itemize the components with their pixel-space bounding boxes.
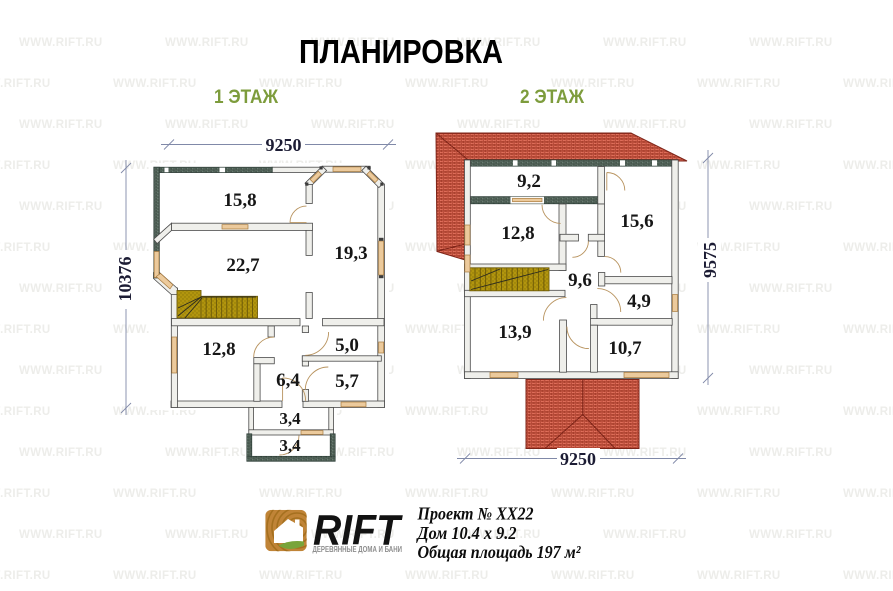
svg-text:10,7: 10,7	[608, 338, 642, 359]
svg-text:Общая площадь 197 м²: Общая площадь 197 м²	[418, 542, 582, 562]
svg-text:Дом 10.4 х 9.2: Дом 10.4 х 9.2	[416, 523, 517, 543]
svg-text:12,8: 12,8	[202, 339, 235, 360]
svg-text:WWW.RIFT.RU: WWW.RIFT.RU	[405, 78, 489, 90]
svg-text:WWW.RIFT.RU: WWW.RIFT.RU	[843, 406, 893, 418]
svg-text:WWW.RIFT.RU: WWW.RIFT.RU	[19, 447, 103, 459]
svg-text:WWW.RIFT.RU: WWW.RIFT.RU	[19, 119, 103, 131]
svg-text:WWW.RIFT.RU: WWW.RIFT.RU	[843, 570, 893, 582]
svg-text:WWW.RIFT.RU: WWW.RIFT.RU	[405, 570, 489, 582]
svg-text:WWW.RIFT.RU: WWW.RIFT.RU	[843, 242, 893, 254]
svg-text:15,6: 15,6	[620, 211, 653, 232]
svg-text:WWW.RIFT.RU: WWW.RIFT.RU	[749, 37, 833, 49]
svg-text:WWW.RIFT.RU: WWW.RIFT.RU	[0, 488, 51, 500]
svg-text:WWW.RIFT.RU: WWW.RIFT.RU	[749, 529, 833, 541]
svg-text:WWW.RIFT.RU: WWW.RIFT.RU	[603, 119, 687, 131]
svg-text:WWW.RIFT.RU: WWW.RIFT.RU	[165, 37, 249, 49]
svg-text:WWW.RIFT.RU: WWW.RIFT.RU	[405, 406, 489, 418]
svg-text:WWW.RIFT.RU: WWW.RIFT.RU	[843, 160, 893, 172]
svg-text:WWW.RIFT.RU: WWW.RIFT.RU	[19, 283, 103, 295]
svg-text:WWW.RIFT.RU: WWW.RIFT.RU	[551, 488, 635, 500]
svg-text:19,3: 19,3	[334, 243, 367, 264]
svg-text:WWW.RIFT.RU: WWW.RIFT.RU	[19, 529, 103, 541]
svg-text:WWW.RIFT.RU: WWW.RIFT.RU	[697, 78, 781, 90]
svg-text:1 ЭТАЖ: 1 ЭТАЖ	[214, 87, 279, 108]
svg-text:2 ЭТАЖ: 2 ЭТАЖ	[520, 87, 585, 108]
svg-text:WWW.RIFT.RU: WWW.RIFT.RU	[0, 242, 51, 254]
svg-text:WWW.RIFT.RU: WWW.RIFT.RU	[19, 365, 103, 377]
svg-text:13,9: 13,9	[498, 322, 531, 343]
svg-text:WWW.RIFT.RU: WWW.RIFT.RU	[749, 119, 833, 131]
svg-text:WWW.RIFT.RU: WWW.RIFT.RU	[843, 488, 893, 500]
svg-text:WWW.RIFT.RU: WWW.RIFT.RU	[19, 201, 103, 213]
svg-text:WWW.RIFT.RU: WWW.RIFT.RU	[311, 119, 395, 131]
svg-text:WWW.RIFT.RU: WWW.RIFT.RU	[113, 570, 197, 582]
svg-text:ПЛАНИРОВКА: ПЛАНИРОВКА	[299, 33, 503, 70]
svg-text:5,0: 5,0	[335, 335, 359, 356]
svg-text:9,6: 9,6	[568, 270, 592, 291]
svg-text:9250: 9250	[560, 449, 596, 469]
svg-text:12,8: 12,8	[501, 223, 534, 244]
svg-text:WWW.RIFT.RU: WWW.RIFT.RU	[749, 447, 833, 459]
svg-text:WWW.RIFT.RU: WWW.RIFT.RU	[19, 37, 103, 49]
svg-text:WWW.RIFT.RU: WWW.RIFT.RU	[843, 324, 893, 336]
svg-text:WWW.RIFT.RU: WWW.RIFT.RU	[603, 37, 687, 49]
svg-text:9575: 9575	[700, 242, 720, 278]
svg-text:WWW.RIFT.RU: WWW.RIFT.RU	[259, 570, 343, 582]
svg-text:WWW.RIFT.RU: WWW.RIFT.RU	[697, 324, 781, 336]
svg-text:9,2: 9,2	[517, 171, 541, 192]
svg-text:6,4: 6,4	[276, 370, 300, 391]
svg-text:ДЕРЕВЯННЫЕ ДОМА И БАНИ: ДЕРЕВЯННЫЕ ДОМА И БАНИ	[313, 545, 403, 554]
svg-text:WWW.RIFT.RU: WWW.RIFT.RU	[259, 488, 343, 500]
svg-text:WWW.RIFT.RU: WWW.RIFT.RU	[749, 365, 833, 377]
svg-text:Проект № ХХ22: Проект № ХХ22	[417, 504, 534, 524]
svg-text:WWW.RIFT.RU: WWW.RIFT.RU	[0, 570, 51, 582]
svg-text:10376: 10376	[115, 257, 135, 302]
svg-text:WWW.RIFT.RU: WWW.RIFT.RU	[457, 119, 541, 131]
svg-text:WWW.RIFT.RU: WWW.RIFT.RU	[0, 406, 51, 418]
svg-text:WWW.RIFT.RU: WWW.RIFT.RU	[603, 529, 687, 541]
svg-text:WWW.RIFT.RU: WWW.RIFT.RU	[697, 570, 781, 582]
svg-text:WWW.RIFT.RU: WWW.RIFT.RU	[0, 160, 51, 172]
svg-text:3,4: 3,4	[279, 409, 301, 428]
svg-text:WWW.RIFT.RU: WWW.RIFT.RU	[551, 570, 635, 582]
svg-text:5,7: 5,7	[335, 371, 359, 392]
svg-text:WWW.RIFT.RU: WWW.RIFT.RU	[843, 78, 893, 90]
svg-text:WWW.RIFT.RU: WWW.RIFT.RU	[749, 201, 833, 213]
svg-text:WWW.RIFT.RU: WWW.RIFT.RU	[405, 488, 489, 500]
svg-text:WWW.RIFT.RU: WWW.RIFT.RU	[0, 78, 51, 90]
svg-text:WWW.RIFT.RU: WWW.RIFT.RU	[113, 488, 197, 500]
svg-text:WWW.RIFT.RU: WWW.RIFT.RU	[749, 283, 833, 295]
svg-text:WWW.RIFT.RU: WWW.RIFT.RU	[697, 406, 781, 418]
svg-text:WWW.RIFT.RU: WWW.RIFT.RU	[165, 447, 249, 459]
svg-text:9250: 9250	[266, 135, 302, 155]
svg-text:3,4: 3,4	[279, 436, 301, 455]
svg-text:4,9: 4,9	[627, 291, 651, 312]
svg-text:15,8: 15,8	[223, 190, 256, 211]
svg-text:WWW.RIFT.RU: WWW.RIFT.RU	[165, 119, 249, 131]
svg-text:WWW.RIFT.RU: WWW.RIFT.RU	[165, 529, 249, 541]
svg-text:WWW.RIFT.RU: WWW.RIFT.RU	[697, 488, 781, 500]
svg-text:WWW.RIFT.RU: WWW.RIFT.RU	[0, 324, 51, 336]
svg-text:WWW.RIFT.RU: WWW.RIFT.RU	[697, 160, 781, 172]
svg-text:WWW.RIFT.RU: WWW.RIFT.RU	[113, 78, 197, 90]
svg-text:22,7: 22,7	[226, 255, 260, 276]
